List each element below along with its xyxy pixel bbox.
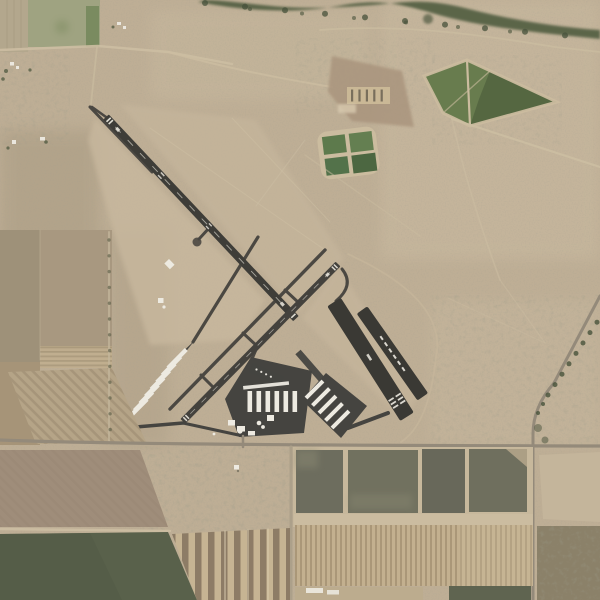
tree-0: [248, 7, 252, 11]
tree: [300, 12, 304, 16]
beacon: [213, 433, 216, 436]
hedgerow-shrub: [108, 333, 111, 336]
tree: [1, 77, 5, 81]
hangar: [275, 391, 280, 412]
parked-aircraft-3: [270, 376, 272, 378]
tree: [588, 330, 593, 335]
tree: [202, 0, 208, 6]
pond-cell: [349, 131, 374, 153]
pit-row-3: [373, 90, 375, 102]
hedgerow-shrub-9: [108, 381, 111, 384]
hangar: [266, 391, 271, 412]
pond-cells: [316, 126, 380, 181]
tree: [44, 140, 48, 144]
tree-1: [242, 4, 248, 10]
hedgerow-shrub-1: [107, 254, 110, 257]
tree: [482, 25, 488, 31]
hangar: [257, 391, 262, 412]
farm-building: [10, 62, 14, 66]
terminal-building: [228, 420, 235, 426]
hangar: [248, 391, 253, 412]
hedgerow-shrub-10: [108, 396, 111, 399]
tree: [6, 146, 9, 149]
hangar: [284, 391, 289, 412]
field-gray: [422, 449, 465, 513]
hedgerow-shrub-8: [108, 365, 111, 368]
hangar: [293, 391, 298, 412]
tree: [522, 29, 528, 35]
tree-5: [581, 341, 586, 346]
tree: [442, 22, 448, 28]
hedgerow-shrub: [108, 396, 111, 399]
hedgerow-shrub-7: [108, 349, 111, 352]
hedgerow-shrub-0: [107, 238, 110, 241]
hedgerow-shrub: [108, 302, 111, 305]
tree: [404, 21, 408, 25]
bright-grade: [338, 104, 356, 113]
field-rows-light: [460, 525, 533, 586]
parked-aircraft: [265, 373, 267, 375]
hedgerow-shrub: [108, 365, 111, 368]
tree-1: [553, 382, 558, 387]
tree: [282, 7, 288, 13]
farm-building: [40, 137, 45, 141]
pit-row-2: [366, 90, 368, 102]
tree: [322, 11, 328, 17]
tree-7: [595, 320, 600, 325]
tree: [595, 320, 600, 325]
tree: [536, 411, 540, 415]
hedgerow-shrub: [108, 412, 111, 415]
tree: [28, 68, 31, 71]
pit-row: [366, 90, 368, 102]
tree: [553, 382, 558, 387]
scrub-dark-texture: [537, 526, 600, 600]
hangar-0: [248, 391, 253, 412]
hedgerow-shrub: [108, 270, 111, 273]
parked-aircraft: [270, 376, 272, 378]
tree: [508, 30, 512, 34]
pit-row: [373, 90, 375, 102]
tree-3: [322, 11, 328, 17]
tree: [242, 4, 248, 10]
tree-6: [588, 330, 593, 335]
pit-row: [351, 90, 353, 102]
tree-4: [362, 14, 368, 20]
shed-shadow: [237, 470, 239, 472]
small-building: [158, 298, 164, 303]
farm-building: [117, 22, 121, 25]
tree: [352, 16, 356, 20]
pit-row: [381, 90, 383, 102]
terminal-building: [248, 431, 255, 436]
packing-shed: [327, 590, 339, 595]
hangar-5: [293, 391, 298, 412]
aerial-screenshot: [0, 0, 600, 600]
hedgerow-shrub: [108, 317, 111, 320]
hedgerow-shrub: [108, 381, 111, 384]
tree-8: [522, 29, 528, 35]
field-tan-east: [539, 452, 600, 522]
tree: [112, 26, 115, 29]
pond-cell: [322, 134, 347, 155]
farm-building: [123, 26, 126, 29]
hedgerow-shrub: [109, 428, 112, 431]
hedgerow-shrub-6: [108, 333, 111, 336]
field-west: [0, 230, 40, 362]
tree: [362, 14, 368, 20]
hedgerow-shrub: [108, 286, 111, 289]
hedgerow-shrub-4: [108, 302, 111, 305]
hedgerow-shrub-11: [108, 412, 111, 415]
shrub-cluster: [534, 424, 542, 432]
tree-0: [202, 0, 208, 6]
tree-2: [560, 372, 565, 377]
tree-4: [574, 351, 579, 356]
tree-9: [562, 32, 568, 38]
hedgerow-shrub-2: [108, 270, 111, 273]
hedgerow-shrub: [107, 238, 110, 241]
packing-shed: [306, 588, 323, 593]
water-tank: [237, 428, 242, 433]
small-building: [162, 305, 165, 308]
fuel-tank: [261, 425, 265, 429]
crop-blob: [55, 20, 69, 34]
field-gray-streak: [350, 494, 412, 509]
scrub-east: [430, 295, 598, 445]
field-west: [40, 230, 112, 352]
field-brown-texture: [0, 450, 168, 527]
fuel-tank: [257, 421, 262, 426]
pit-row: [358, 90, 360, 102]
tree-7: [482, 25, 488, 31]
wash-thicket: [423, 14, 433, 24]
tree: [4, 69, 8, 73]
tree-5: [508, 30, 512, 34]
tree-1: [300, 12, 304, 16]
field-topleft-green: [86, 6, 99, 47]
field-dark: [449, 586, 531, 600]
hedgerow-shrub-5: [108, 317, 111, 320]
parked-aircraft-2: [265, 373, 267, 375]
tree-3: [404, 21, 408, 25]
pit-row-1: [358, 90, 360, 102]
borrow-pit: [347, 87, 390, 104]
tree: [541, 402, 545, 406]
field-row-band: [40, 346, 112, 368]
parked-aircraft: [260, 371, 262, 373]
tree-0: [546, 393, 551, 398]
tree-6: [442, 22, 448, 28]
tree-2: [282, 7, 288, 13]
hangar: [267, 415, 274, 421]
tree: [574, 351, 579, 356]
farm-building: [16, 66, 19, 69]
hedgerow-shrub-12: [109, 428, 112, 431]
tree-2: [352, 16, 356, 20]
hedgerow-shrub-3: [108, 286, 111, 289]
pit-row-0: [351, 90, 353, 102]
farm-building: [12, 140, 16, 144]
parked-aircraft: [255, 368, 257, 370]
shed: [234, 465, 239, 470]
tree: [567, 361, 572, 366]
tree: [456, 25, 460, 29]
tree: [562, 32, 568, 38]
hangar-1: [257, 391, 262, 412]
pond-cell: [325, 156, 350, 176]
parked-aircraft-1: [260, 371, 262, 373]
tree: [560, 372, 565, 377]
tree: [581, 341, 586, 346]
hedgerow-shrub: [108, 349, 111, 352]
pond-cell: [351, 153, 377, 174]
parked-aircraft-0: [255, 368, 257, 370]
hangar-2: [266, 391, 271, 412]
shrub-cluster: [542, 437, 549, 444]
tree-3: [567, 361, 572, 366]
tree: [546, 393, 551, 398]
hedgerow-shrub: [107, 254, 110, 257]
hangar-4: [284, 391, 289, 412]
hangar-3: [275, 391, 280, 412]
aerial-photo: [0, 0, 600, 600]
field-gray-light: [296, 450, 318, 468]
runup-pad: [193, 238, 202, 247]
tree-4: [456, 25, 460, 29]
tree: [248, 7, 252, 11]
field-strip: [294, 514, 533, 525]
pit-row-4: [381, 90, 383, 102]
